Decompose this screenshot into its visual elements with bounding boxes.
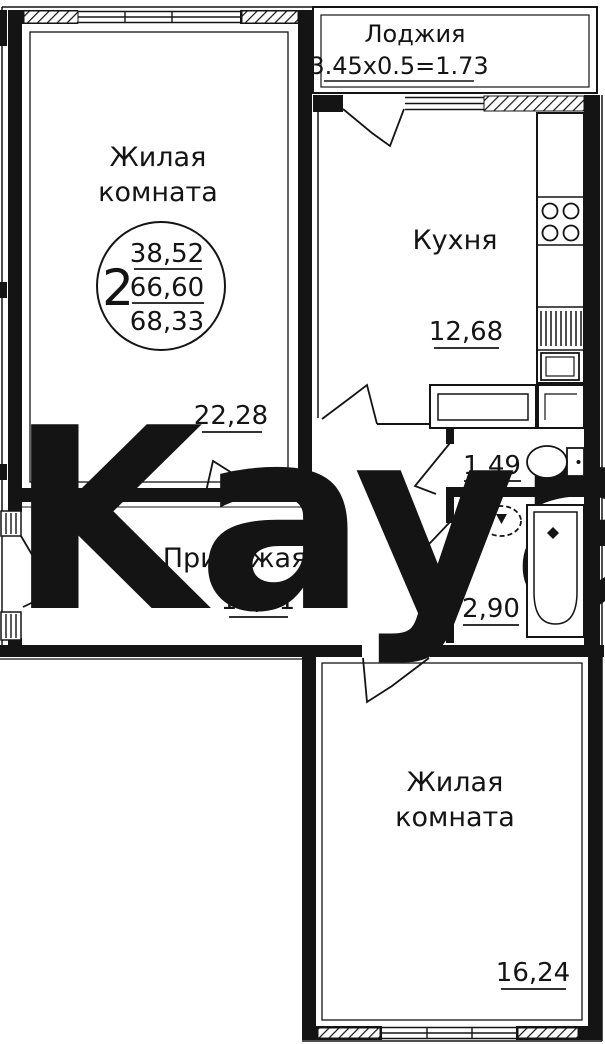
- living-bottom-label-2: комната: [395, 802, 515, 833]
- hallway-area: 11,01: [221, 586, 295, 616]
- stamp-area-total: 68,33: [130, 307, 204, 337]
- loggia-label: Лоджия: [365, 20, 466, 48]
- window-living-bottom: [382, 1026, 516, 1040]
- toilet: [527, 446, 584, 478]
- hallway-label: Прихожая: [163, 543, 308, 574]
- kitchen-sink: [541, 353, 579, 380]
- stamp-living-area: 38,52: [130, 239, 204, 269]
- living-top-area: 22,28: [194, 401, 268, 431]
- bathroom-area: 2,90: [462, 594, 520, 624]
- apartment-stamp: 2 38,52 66,60 68,33: [97, 222, 225, 350]
- living-top-label-2: комната: [98, 177, 218, 208]
- kitchen-area: 12,68: [429, 317, 503, 347]
- living-bottom-area: 16,24: [496, 958, 570, 988]
- wc-area: 1,49: [463, 451, 521, 481]
- window-kitchen: [405, 95, 484, 112]
- loggia-dims: 3.45x0.5=1.73: [309, 52, 488, 80]
- balcony-door-leaf: [343, 109, 404, 146]
- bathtub: [527, 505, 584, 637]
- counter-bottom: [430, 385, 584, 428]
- stamp-area-mid: 66,60: [130, 273, 204, 303]
- living-top-label-1: Жилая: [110, 142, 207, 173]
- window-living-top: [78, 10, 240, 24]
- floor-plan-page: Kayan: [0, 0, 605, 1044]
- kitchen-label: Кухня: [412, 225, 497, 256]
- floor-plan-svg: Kayan: [0, 0, 605, 1044]
- living-bottom-label-1: Жилая: [407, 767, 504, 798]
